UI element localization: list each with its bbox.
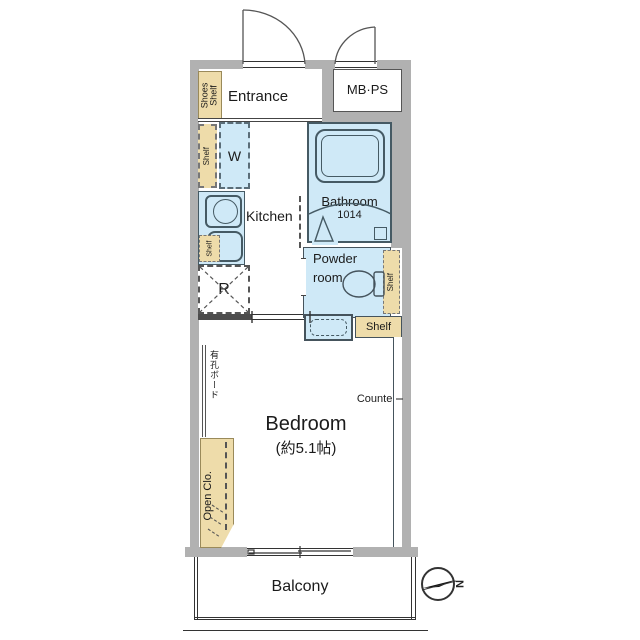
fridge-label: R <box>218 281 230 299</box>
wall-segment <box>353 547 418 557</box>
washer-space: W <box>219 122 250 189</box>
balcony-label: Balcony <box>240 578 360 596</box>
compass-icon: N <box>422 568 465 600</box>
entrance-step-line <box>198 118 322 122</box>
bathroom-size-label: 1014 <box>307 209 392 221</box>
stove-burner-icon <box>213 199 238 224</box>
hanger-rod-icon <box>225 442 227 530</box>
wall-segment <box>305 60 335 69</box>
sliding-door <box>252 314 310 320</box>
pegboard <box>202 345 206 437</box>
entrance-label: Entrance <box>228 88 288 105</box>
counter-label: Counter <box>326 393 396 405</box>
balcony-rail <box>194 617 416 620</box>
wall-segment <box>402 60 411 557</box>
wall-segment <box>185 547 247 557</box>
balcony-rail <box>411 557 416 619</box>
refrigerator-space: R <box>198 265 250 314</box>
powder-room-label: Powder <box>313 251 357 266</box>
mbps-door-threshold <box>335 61 377 68</box>
kitchen-label: Kitchen <box>246 208 293 224</box>
bath-counter-icon <box>374 227 387 240</box>
bathtub-inner <box>321 135 379 177</box>
sliding-window <box>247 548 353 556</box>
bedroom-size-label: (約5.1帖) <box>226 437 386 458</box>
compass-north-label: N <box>453 580 465 588</box>
floor-plan: MB·PS Entrance Shoes Shelf Shelf W Shelf… <box>0 0 640 640</box>
bedroom-label: Bedroom <box>226 413 386 436</box>
wall-segment <box>322 112 411 122</box>
shoes-shelf: Shoes Shelf <box>198 71 222 120</box>
wall-segment <box>198 314 253 320</box>
shelf: Shelf <box>383 250 400 314</box>
shelf: Shelf <box>198 124 217 188</box>
mbps-label: MB·PS <box>333 82 402 97</box>
open-closet-label: Open Clo. <box>198 460 220 532</box>
washer-label: W <box>228 148 241 164</box>
mbps-door-swing <box>335 27 375 64</box>
balcony-outer-edge <box>183 630 428 632</box>
shelf: Shelf <box>199 235 220 262</box>
shelf: Shelf <box>355 316 402 338</box>
powder-room-doorway <box>301 258 306 296</box>
balcony-rail <box>194 557 198 619</box>
entrance-door-swing <box>243 10 305 64</box>
bathroom-label: Bathroom <box>307 194 392 209</box>
washbasin-bowl-icon <box>310 319 347 336</box>
entrance-door-threshold <box>243 61 305 68</box>
wall-segment <box>322 69 333 115</box>
pegboard-label: 有孔ボード <box>208 350 221 434</box>
wall-segment <box>391 122 403 248</box>
open-boundary-dash <box>299 196 301 248</box>
counter <box>393 337 402 547</box>
powder-room-label: room <box>313 270 343 285</box>
bathroom-doorway <box>312 240 338 245</box>
